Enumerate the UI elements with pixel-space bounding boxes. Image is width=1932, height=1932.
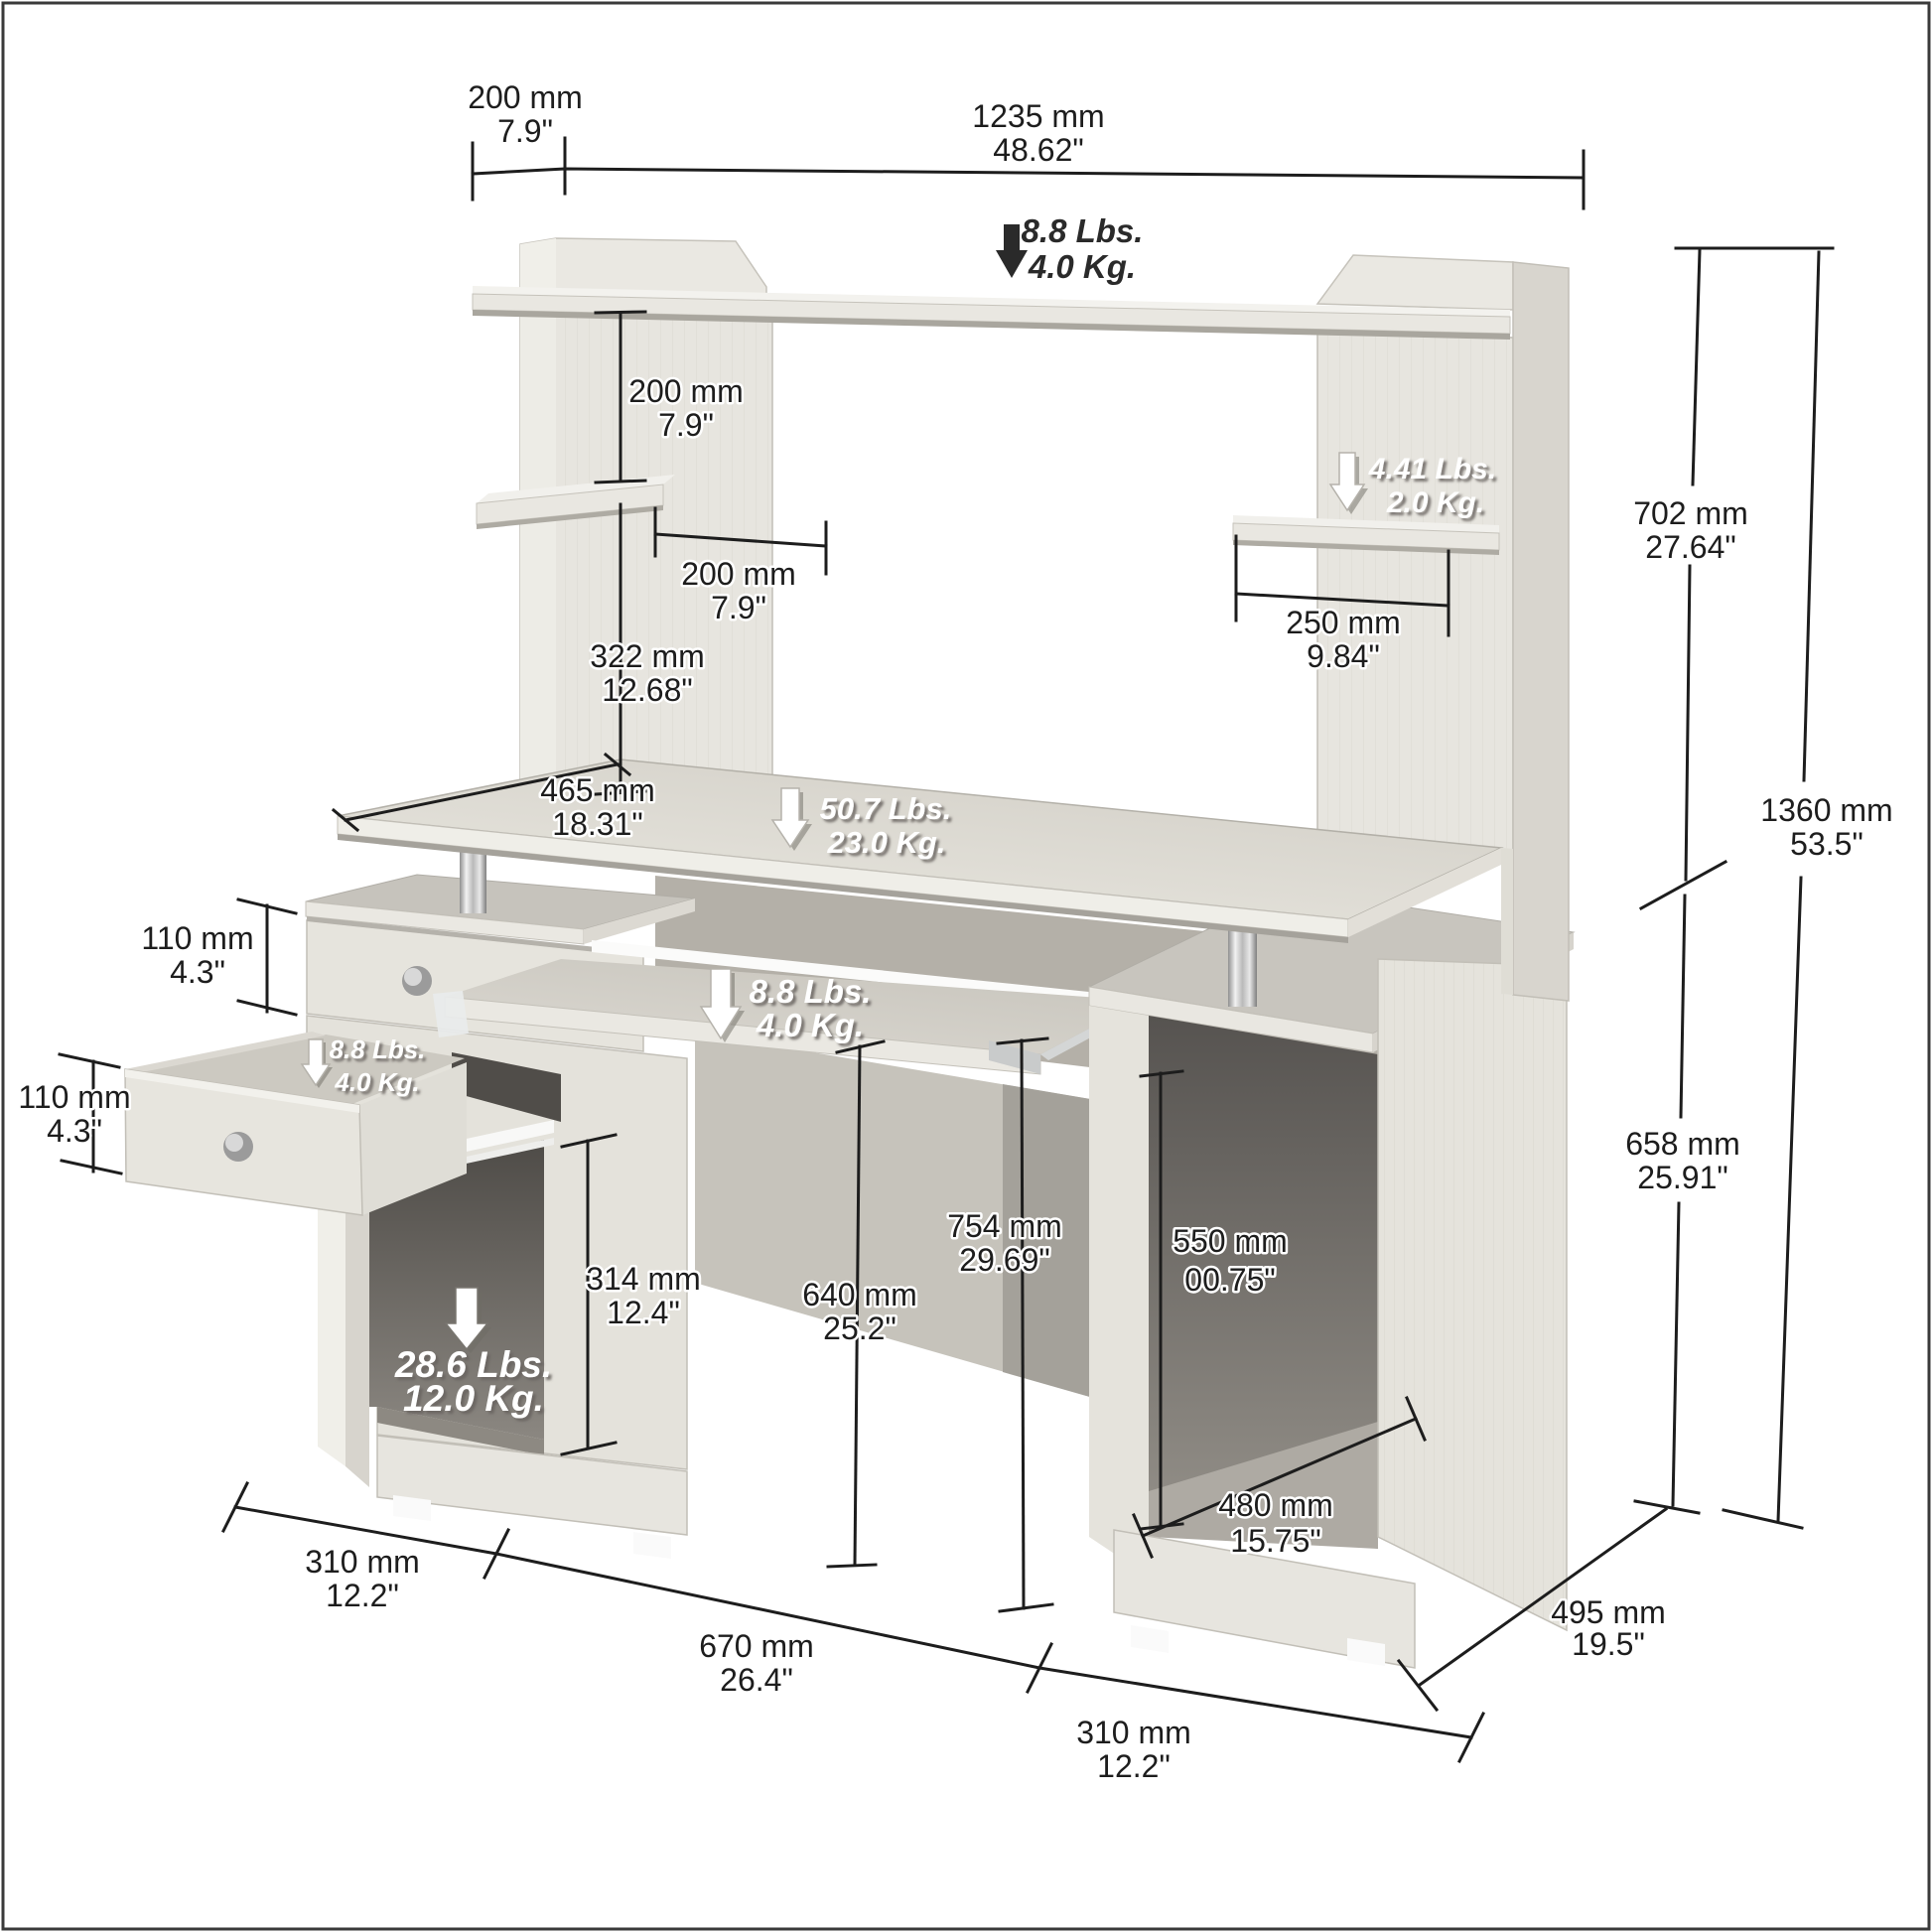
svg-text:8.8 Lbs.: 8.8 Lbs.	[1022, 212, 1144, 249]
svg-text:4.0 Kg.: 4.0 Kg.	[334, 1067, 419, 1097]
svg-text:4.41 Lbs.: 4.41 Lbs.	[1368, 453, 1496, 485]
svg-text:8.8 Lbs.: 8.8 Lbs.	[330, 1035, 426, 1064]
svg-text:9.84": 9.84"	[1307, 638, 1380, 674]
svg-text:7.9": 7.9"	[711, 590, 766, 625]
svg-text:4.0 Kg.: 4.0 Kg.	[1028, 248, 1136, 285]
svg-text:480 mm: 480 mm	[1218, 1487, 1333, 1523]
svg-text:4.0 Kg.: 4.0 Kg.	[756, 1007, 864, 1043]
svg-text:754 mm: 754 mm	[947, 1208, 1062, 1244]
svg-text:12.4": 12.4"	[607, 1295, 680, 1330]
svg-text:310 mm: 310 mm	[1076, 1715, 1191, 1750]
svg-text:7.9": 7.9"	[658, 407, 714, 443]
svg-text:110 mm: 110 mm	[141, 920, 253, 956]
svg-text:12.0 Kg.: 12.0 Kg.	[403, 1378, 544, 1419]
svg-text:26.4": 26.4"	[720, 1662, 793, 1698]
svg-text:15.75": 15.75"	[1230, 1523, 1320, 1559]
svg-text:4.3": 4.3"	[170, 954, 225, 990]
svg-text:250 mm: 250 mm	[1286, 605, 1401, 640]
svg-text:48.62": 48.62"	[993, 132, 1083, 168]
svg-text:310 mm: 310 mm	[305, 1544, 420, 1580]
svg-text:12.68": 12.68"	[602, 672, 692, 708]
svg-text:50.7 Lbs.: 50.7 Lbs.	[820, 791, 952, 826]
svg-text:19.5": 19.5"	[1572, 1626, 1645, 1662]
svg-text:670 mm: 670 mm	[699, 1628, 814, 1664]
svg-text:8.8 Lbs.: 8.8 Lbs.	[750, 973, 872, 1010]
svg-text:322 mm: 322 mm	[590, 638, 705, 674]
svg-text:550 mm: 550 mm	[1173, 1223, 1288, 1259]
svg-text:12.2": 12.2"	[326, 1578, 399, 1613]
svg-text:495 mm: 495 mm	[1551, 1594, 1666, 1630]
svg-text:25.91": 25.91"	[1637, 1160, 1727, 1195]
svg-text:200 mm: 200 mm	[681, 556, 796, 592]
svg-text:1360 mm: 1360 mm	[1760, 792, 1892, 828]
svg-text:1235 mm: 1235 mm	[972, 98, 1104, 134]
svg-text:658 mm: 658 mm	[1625, 1126, 1740, 1162]
svg-text:110 mm: 110 mm	[18, 1079, 130, 1115]
svg-text:29.69": 29.69"	[959, 1242, 1049, 1278]
svg-text:200 mm: 200 mm	[468, 79, 583, 115]
svg-text:314 mm: 314 mm	[586, 1261, 701, 1297]
svg-text:12.2": 12.2"	[1097, 1748, 1171, 1784]
svg-text:702 mm: 702 mm	[1633, 495, 1748, 531]
svg-text:640 mm: 640 mm	[802, 1277, 917, 1312]
svg-text:23.0 Kg.: 23.0 Kg.	[827, 825, 946, 860]
svg-text:18.31": 18.31"	[552, 806, 642, 842]
svg-text:465 mm: 465 mm	[540, 772, 655, 808]
svg-text:200 mm: 200 mm	[628, 373, 744, 409]
svg-text:53.5": 53.5"	[1790, 826, 1863, 862]
svg-text:7.9": 7.9"	[497, 113, 553, 149]
svg-text:2.0 Kg.: 2.0 Kg.	[1386, 486, 1484, 519]
svg-text:25.2": 25.2"	[823, 1311, 897, 1346]
svg-text:00.75": 00.75"	[1184, 1262, 1275, 1298]
svg-text:27.64": 27.64"	[1645, 529, 1735, 565]
svg-text:4.3": 4.3"	[47, 1113, 102, 1149]
